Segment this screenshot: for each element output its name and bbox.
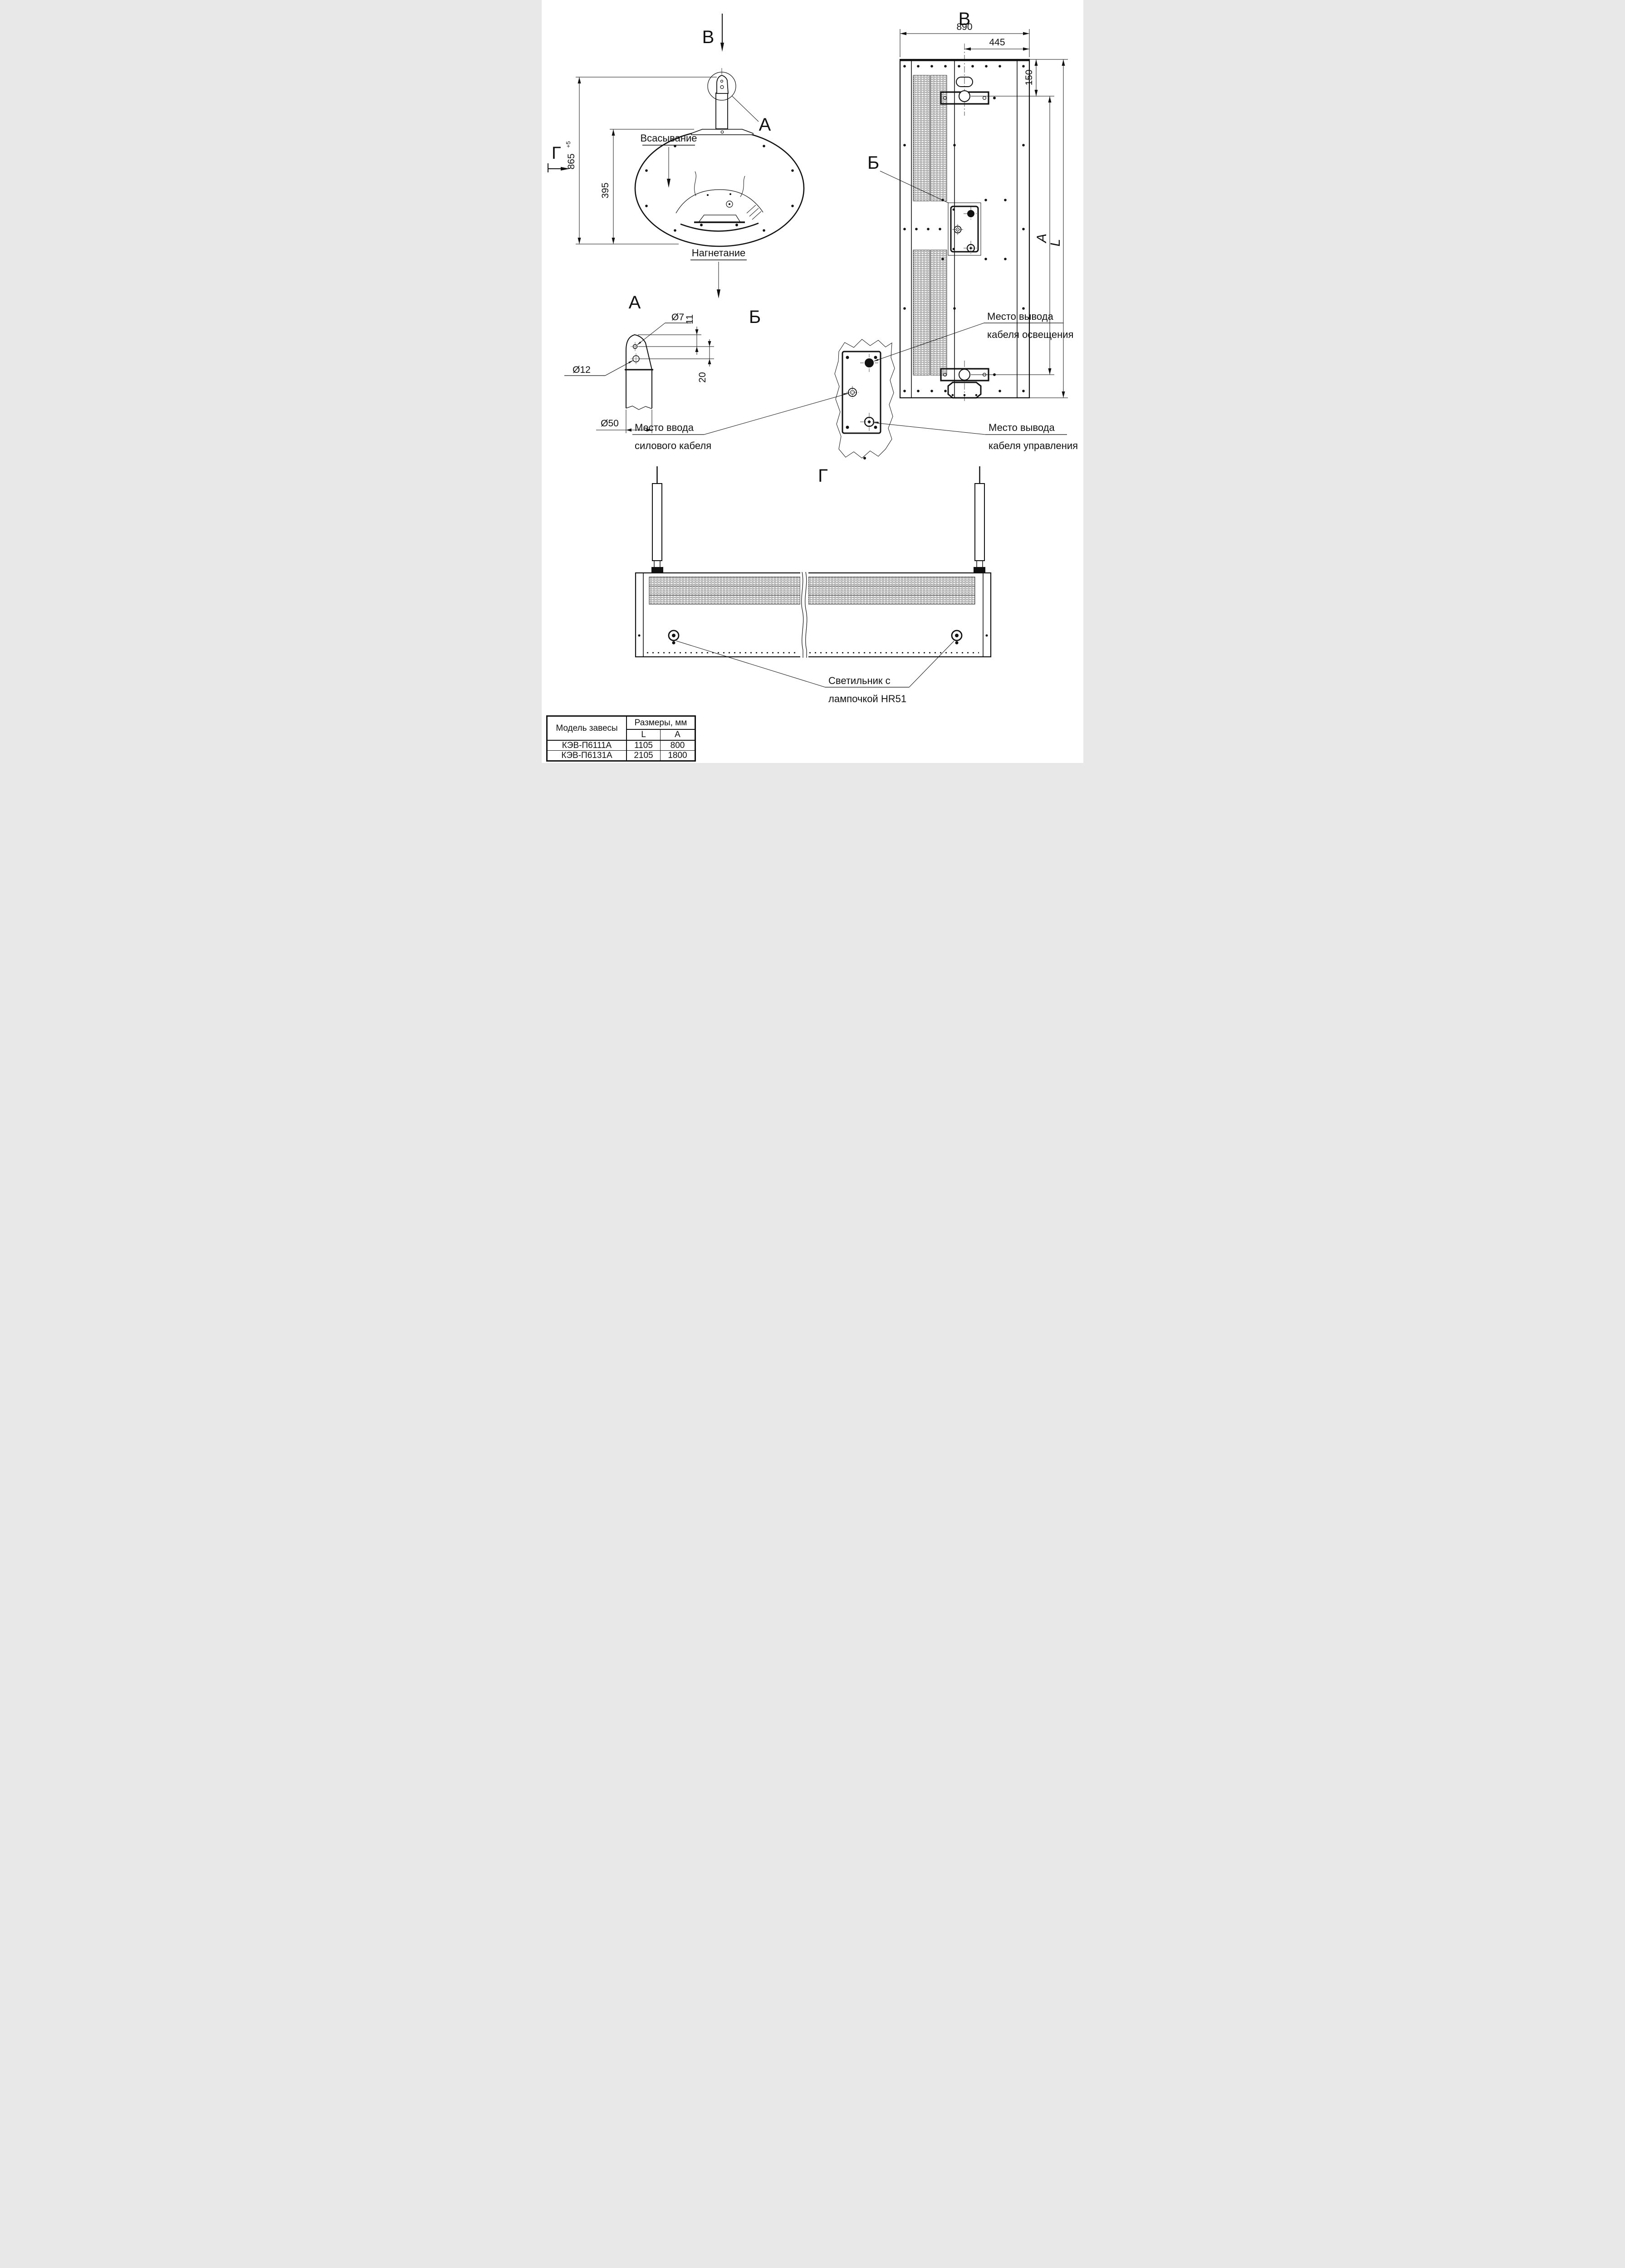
dim-865-tol: +5 [565,141,572,148]
table-header-dims: Размеры, мм [627,717,695,730]
bracket-head-detail [626,335,652,370]
intake-grille-band [649,577,975,604]
detail-ref-a-label: А [759,115,771,135]
table-row-l: 2105 [627,750,661,760]
bottom-view-title: Г [818,466,828,486]
control-line1: Место вывода [989,422,1055,433]
hanging-rod-right [974,466,985,573]
suction-label: Всасывание [640,132,697,144]
table-row-model: КЭВ-П6111А [548,740,627,750]
detail-ref-b-label: Б [867,153,879,173]
rear-view-b: В [867,9,1068,401]
dim-l-total: L [1029,59,1068,398]
power-line1: Место ввода [635,422,694,433]
dim-20-label: 20 [697,372,708,382]
drawing-sheet: В [542,0,1083,763]
mount-plate [691,129,753,135]
view-marker-g: Г [552,144,561,163]
dim-395-label: 395 [600,182,611,198]
table-row-l: 1105 [627,740,661,750]
detail-a-title: А [629,293,641,313]
table-header-model: Модель завесы [548,717,627,740]
dim-150-label: 150 [1024,69,1034,85]
power-line2: силового кабеля [635,440,711,451]
table-header-a: А [661,730,695,740]
lighting-line2: кабеля освещения [987,329,1073,340]
technical-drawing: В [542,0,1083,763]
lamp-label-line1: Светильник с [828,675,891,686]
view-marker-b: В [702,27,715,47]
dim-a-label: А [1034,234,1049,244]
dim-l-label: L [1048,239,1063,247]
ellipse-body [635,130,804,246]
discharge-label: Нагнетание [692,247,746,259]
lamp-label-line2: лампочкой HR51 [828,693,906,704]
dim-20: 20 [640,339,714,383]
table-row-model: КЭВ-П6131А [548,750,627,760]
dia50-label: Ø50 [601,418,619,429]
dia12-label: Ø12 [573,365,591,375]
control-cable-callout: Место вывода кабеля управления [874,422,1078,451]
bottom-view-g: Г [636,466,991,704]
box-screws [846,356,877,460]
table-row-a: 1800 [661,750,695,760]
table-row-a: 800 [661,740,695,750]
lighting-line1: Место вывода [987,311,1054,322]
power-cable-callout: Место ввода силового кабеля [632,393,849,451]
dim-890-label: 890 [956,22,972,32]
dim-11-label: 11 [685,314,695,324]
bracket-head [717,75,728,93]
dim-865-label: 865 [566,153,577,169]
side-view: В [548,14,804,298]
discharge-arrow-icon [717,289,720,298]
dia7-label: Ø7 [671,312,684,323]
table-header-l: L [627,730,661,740]
detail-b-title: Б [749,307,761,327]
arrow-down-icon [720,43,724,52]
detail-a: А Ø7 Ø12 11 [564,293,714,433]
dim-890: 890 [900,22,1029,57]
dim-445-label: 445 [989,37,1005,48]
suspension-rod [716,93,728,129]
dim-445: 445 [964,37,1029,51]
dimensions-table: Модель завесы Размеры, мм L А КЭВ-П6111А… [546,715,696,762]
hanging-rod-left [651,466,663,573]
control-line2: кабеля управления [989,440,1078,451]
